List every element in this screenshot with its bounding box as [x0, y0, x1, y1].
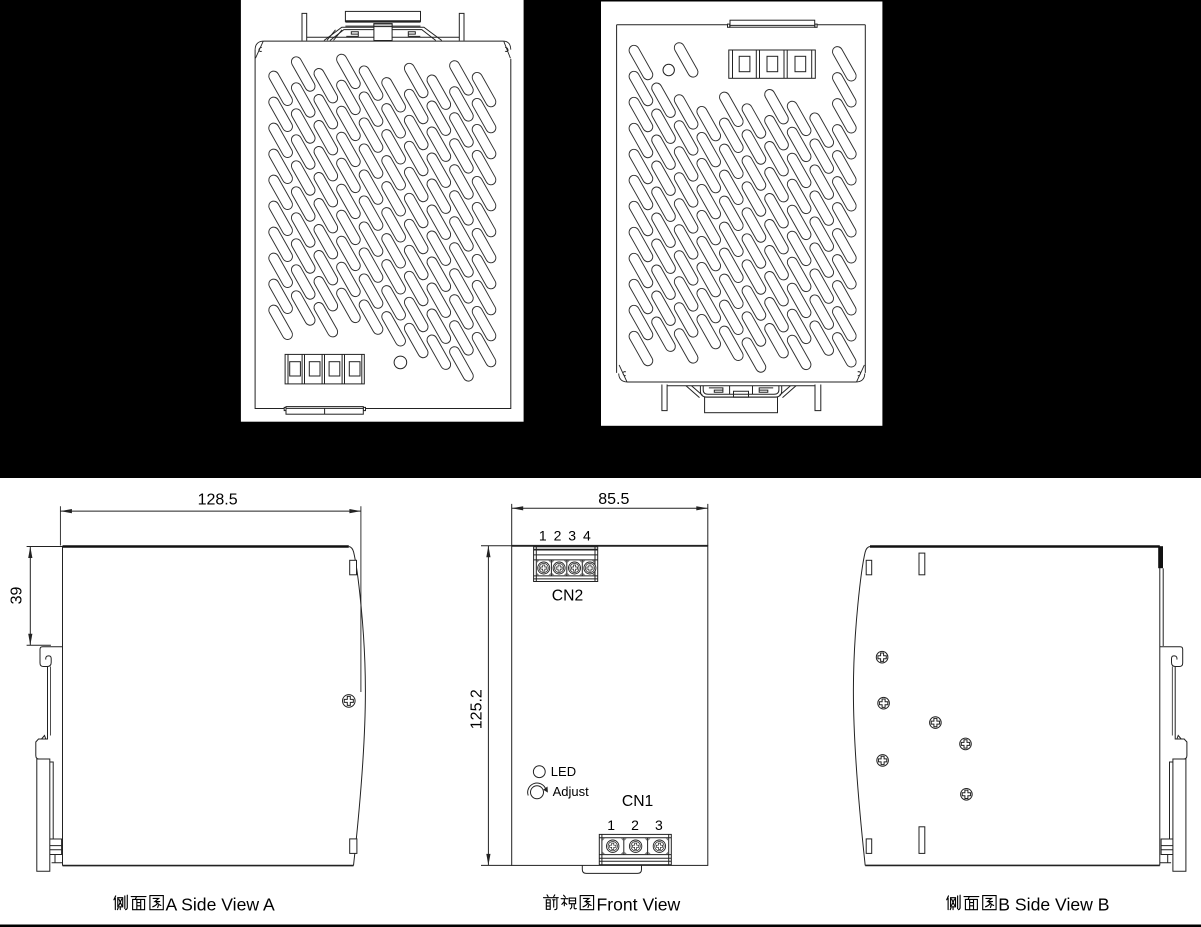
svg-text:B Side View B: B Side View B	[998, 894, 1109, 914]
svg-text:4: 4	[583, 527, 591, 543]
svg-text:85.5: 85.5	[598, 491, 629, 508]
svg-text:A Side View A: A Side View A	[166, 894, 275, 914]
svg-text:39: 39	[9, 587, 26, 605]
svg-text:3: 3	[655, 817, 663, 833]
svg-text:1: 1	[539, 527, 547, 543]
svg-text:2: 2	[631, 817, 639, 833]
svg-text:3: 3	[568, 527, 576, 543]
svg-text:CN1: CN1	[622, 793, 653, 810]
svg-text:128.5: 128.5	[198, 492, 238, 509]
svg-text:1: 1	[607, 817, 615, 833]
svg-text:Front View: Front View	[597, 894, 681, 914]
svg-text:LED: LED	[551, 764, 576, 779]
svg-text:2: 2	[554, 527, 562, 543]
svg-text:CN2: CN2	[552, 588, 583, 605]
svg-text:125.2: 125.2	[469, 689, 486, 729]
svg-text:Adjust: Adjust	[553, 784, 590, 799]
